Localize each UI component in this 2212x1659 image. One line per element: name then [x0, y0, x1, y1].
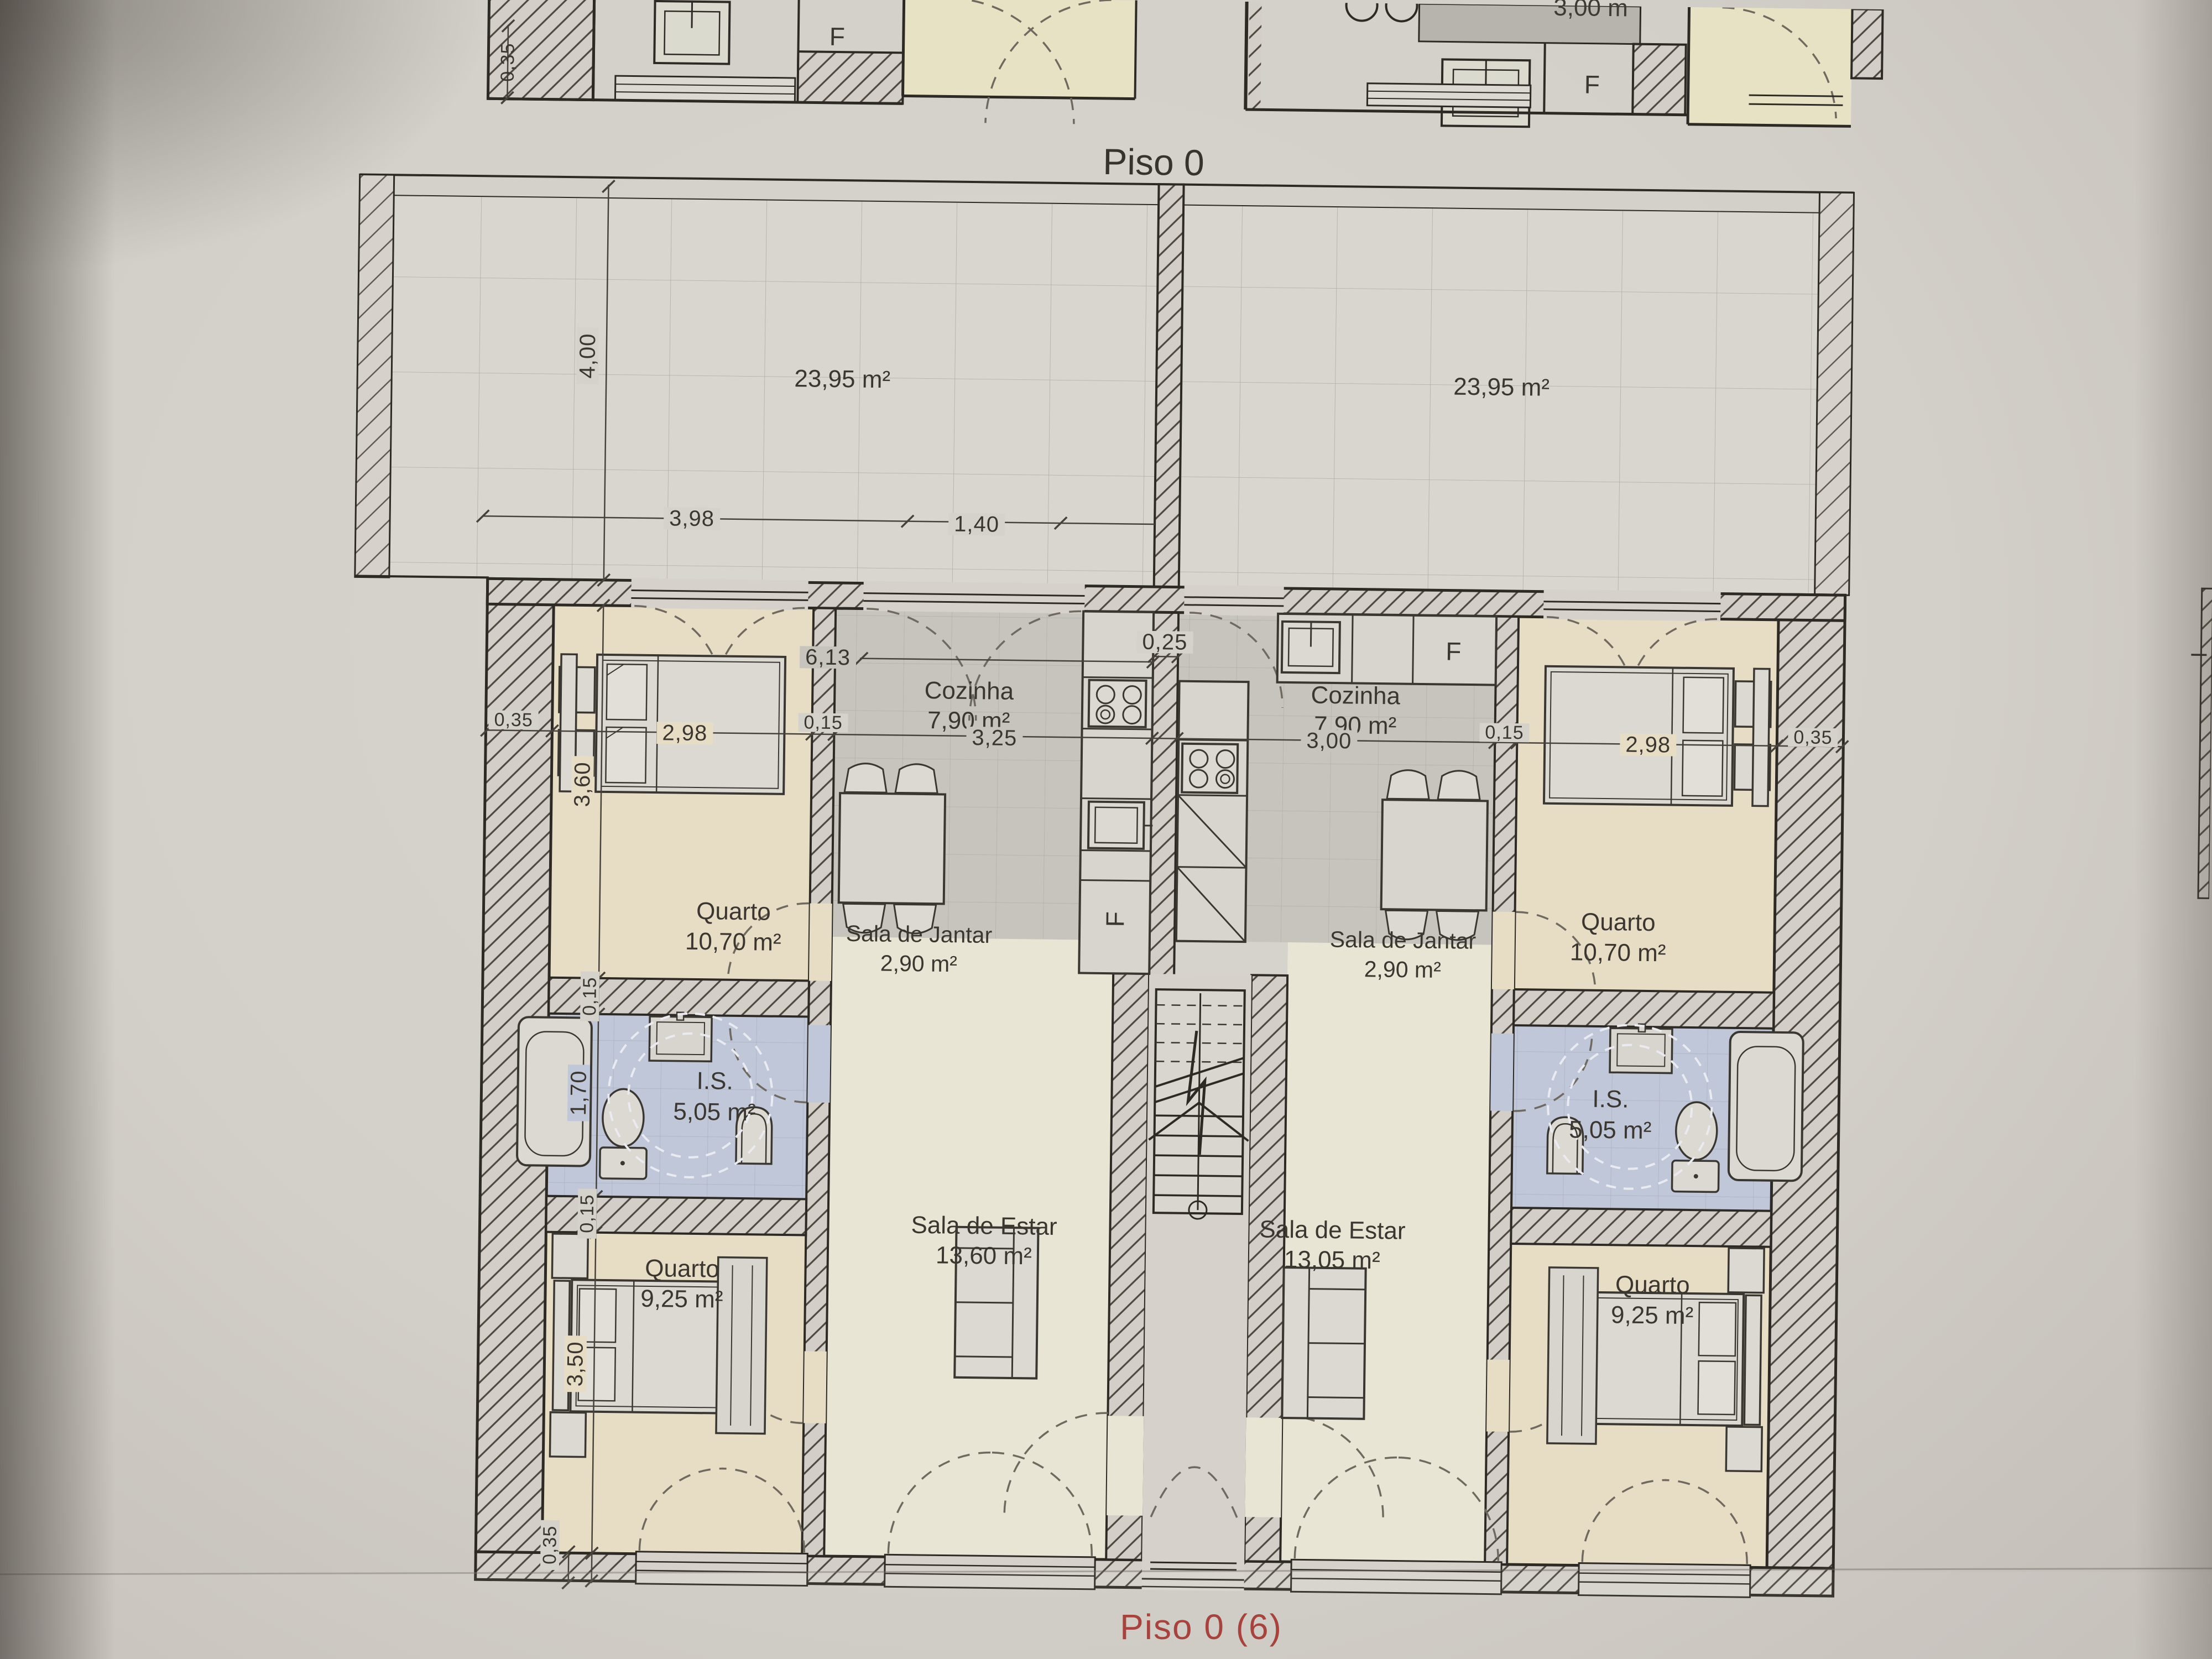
bathroom-left-name: I.S. — [696, 1069, 733, 1094]
dim-bottom-wall: 0,35 — [540, 1520, 560, 1571]
terraces — [355, 174, 1854, 595]
dim-terrace-depth: 4,00 — [576, 327, 599, 384]
dim-bed-right-w: 2,98 — [1620, 733, 1676, 756]
dim-wall-left: 0,15 — [798, 713, 848, 732]
living-left-name: Sala de Estar — [911, 1213, 1057, 1239]
fridge-label-left: F — [1102, 911, 1128, 927]
dining-right-name: Sala de Jantar — [1329, 928, 1476, 952]
living-right-name: Sala de Estar — [1259, 1217, 1406, 1243]
dim-center-wall: 0,25 — [1136, 631, 1193, 654]
dim-terrace-w2: 1,40 — [948, 513, 1005, 536]
dim-bath-h: 1,70 — [567, 1065, 590, 1121]
bedroom-bottom-right-name: Quarto — [1615, 1272, 1690, 1298]
floor-title: Piso 0 — [1103, 143, 1204, 181]
plan-sheet: Piso 0 23,95 m² 23,95 m² 4,00 3,98 1,40 … — [0, 0, 2212, 1659]
dining-left-name: Sala de Jantar — [846, 922, 993, 947]
floorplan-photo: Piso 0 23,95 m² 23,95 m² 4,00 3,98 1,40 … — [0, 0, 2212, 1659]
living-left-area: 13,60 m² — [936, 1243, 1032, 1269]
dim-left-wall: 0,35 — [488, 710, 539, 729]
bedroom-top-left-name: Quarto — [696, 899, 771, 925]
bedroom-bottom-right-area: 9,25 m² — [1611, 1303, 1694, 1328]
terrace-right-area: 23,95 m² — [1453, 375, 1550, 400]
bathroom-right-area: 5,05 m² — [1569, 1118, 1652, 1143]
upper-strip-fridge-right: F — [1584, 71, 1600, 97]
dim-kitchen-left-w: 3,25 — [966, 727, 1022, 749]
dim-terrace-w1: 3,98 — [664, 507, 720, 530]
adjacent-sheet-sliver — [2188, 588, 2212, 898]
dim-kitchen-right-w: 3,00 — [1301, 729, 1357, 752]
dim-bath-wall-bottom: 0,15 — [577, 1188, 597, 1239]
bathroom-right-name: I.S. — [1592, 1087, 1629, 1112]
dim-right-wall: 0,35 — [1788, 728, 1838, 747]
bathroom-left-area: 5,05 m² — [673, 1100, 756, 1125]
bedroom-bottom-left-area: 9,25 m² — [640, 1287, 723, 1312]
dim-bed-left-h: 3,60 — [571, 756, 594, 812]
upper-strip-fridge-left: F — [829, 24, 845, 49]
sheet-footer-label: Piso 0 (6) — [1120, 1609, 1282, 1645]
bedroom-top-right-name: Quarto — [1581, 910, 1656, 936]
dining-left-area: 2,90 m² — [880, 952, 957, 976]
living-right-area: 13,05 m² — [1284, 1248, 1380, 1273]
bedroom-top-left-area: 10,70 m² — [685, 930, 781, 955]
upper-floor-strip — [488, 0, 1883, 134]
floorplan-drawing — [0, 0, 2212, 1659]
kitchen-right-name: Cozinha — [1311, 684, 1400, 709]
dim-bed-left-w: 2,98 — [656, 722, 713, 744]
fridge-label-right: F — [1446, 639, 1462, 664]
bedroom-top-right-area: 10,70 m² — [1570, 940, 1666, 966]
dining-right-area: 2,90 m² — [1364, 958, 1441, 982]
kitchen-left-name: Cozinha — [924, 679, 1014, 704]
dim-bath-wall-top: 0,15 — [580, 971, 599, 1021]
dim-wall-right: 0,15 — [1479, 723, 1530, 742]
staircase — [1142, 974, 1252, 1591]
upper-strip-counter-text: 3,00 m — [1553, 0, 1628, 20]
upper-strip-dim-wall: 0,35 — [498, 43, 518, 82]
terrace-left-area: 23,95 m² — [794, 367, 890, 392]
dim-bed-bottom-h: 3,50 — [564, 1335, 587, 1392]
bedroom-bottom-left-name: Quarto — [645, 1256, 719, 1282]
dim-total-width: 6,13 — [800, 646, 856, 669]
